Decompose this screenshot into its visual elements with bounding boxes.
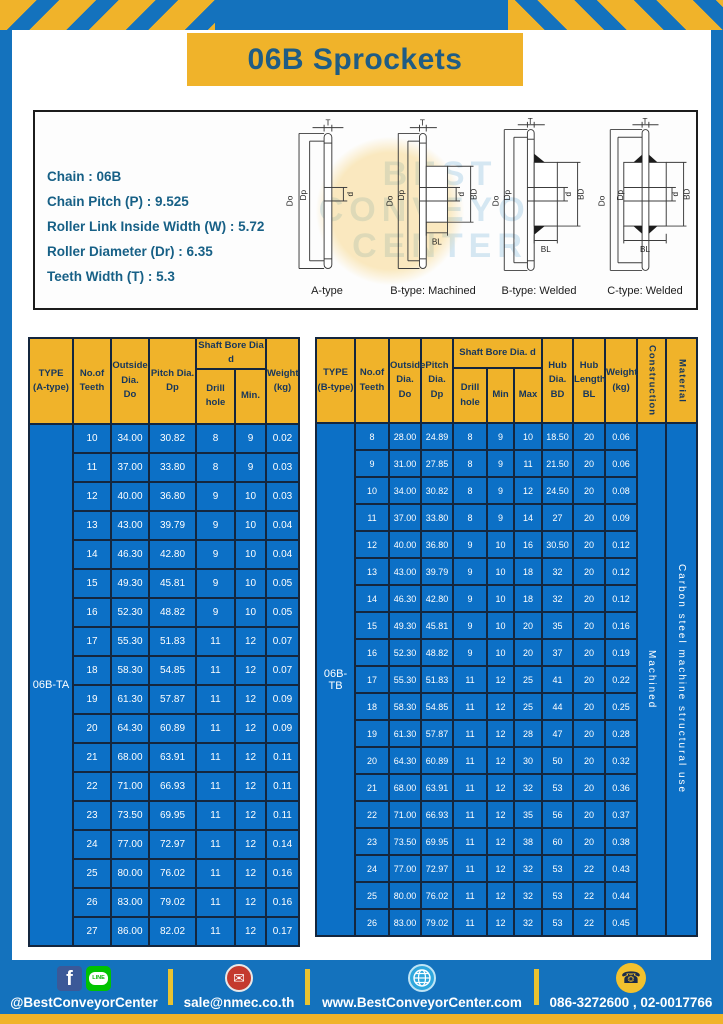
data-cell: 12: [235, 627, 266, 656]
data-cell: 0.08: [605, 477, 637, 504]
facebook-icon: f: [57, 966, 82, 991]
data-cell: 72.97: [149, 830, 196, 859]
data-cell: 32: [514, 855, 542, 882]
data-cell: 11: [453, 666, 487, 693]
svg-text:Dp: Dp: [616, 189, 625, 200]
data-cell: 0.36: [605, 774, 637, 801]
svg-text:Do: Do: [285, 195, 294, 206]
data-cell: 10: [487, 639, 514, 666]
data-cell: 24: [355, 855, 389, 882]
data-cell: 10: [514, 423, 542, 450]
data-cell: 20: [573, 612, 605, 639]
data-cell: 32: [514, 909, 542, 936]
data-cell: 0.06: [605, 450, 637, 477]
bottom-accent-strip: [0, 1014, 723, 1024]
data-cell: 10: [235, 540, 266, 569]
hazard-stripes-left: [0, 0, 215, 30]
svg-text:Dp: Dp: [397, 189, 406, 200]
svg-text:d: d: [346, 191, 355, 196]
data-cell: 16: [73, 598, 111, 627]
data-cell: 9: [196, 482, 235, 511]
spec-line: Chain : 06B: [47, 164, 287, 189]
data-cell: 77.00: [111, 830, 149, 859]
data-cell: 20: [573, 639, 605, 666]
svg-text:T: T: [325, 119, 330, 128]
data-cell: 20: [573, 531, 605, 558]
data-cell: 57.87: [149, 685, 196, 714]
data-cell: 11: [453, 774, 487, 801]
data-cell: 11: [196, 830, 235, 859]
data-cell: 9: [453, 531, 487, 558]
data-cell: 11: [355, 504, 389, 531]
data-cell: 36.80: [149, 482, 196, 511]
data-cell: 11: [196, 685, 235, 714]
data-cell: 20: [573, 477, 605, 504]
data-cell: 12: [235, 743, 266, 772]
data-cell: 60.89: [421, 747, 453, 774]
data-cell: 32: [514, 882, 542, 909]
data-cell: 71.00: [111, 772, 149, 801]
data-cell: 20: [514, 612, 542, 639]
data-cell: 0.38: [605, 828, 637, 855]
data-cell: 55.30: [389, 666, 421, 693]
data-cell: 0.37: [605, 801, 637, 828]
table-row: 06B-TA1034.0030.82890.02: [29, 424, 299, 453]
data-cell: 11: [453, 882, 487, 909]
data-cell: 0.32: [605, 747, 637, 774]
data-cell: 13: [355, 558, 389, 585]
construction-value: Machined: [637, 423, 666, 936]
data-cell: 86.00: [111, 917, 149, 946]
data-cell: 12: [487, 909, 514, 936]
data-cell: 9: [453, 639, 487, 666]
social-handle: @BestConveyorCenter: [10, 995, 157, 1010]
data-cell: 49.30: [111, 569, 149, 598]
data-cell: 51.83: [149, 627, 196, 656]
data-cell: 0.09: [266, 714, 299, 743]
data-cell: 14: [73, 540, 111, 569]
data-cell: 32: [542, 585, 573, 612]
col-header-construction: Construction: [637, 338, 666, 423]
data-cell: 0.07: [266, 627, 299, 656]
data-cell: 22: [573, 909, 605, 936]
data-cell: 0.04: [266, 540, 299, 569]
data-cell: 12: [235, 830, 266, 859]
data-cell: 11: [514, 450, 542, 477]
data-cell: 11: [196, 859, 235, 888]
data-cell: 21.50: [542, 450, 573, 477]
data-cell: 12: [487, 855, 514, 882]
hazard-stripes-right: [508, 0, 723, 30]
data-cell: 35: [514, 801, 542, 828]
data-cell: 72.97: [421, 855, 453, 882]
data-cell: 58.30: [389, 693, 421, 720]
data-cell: 30.82: [149, 424, 196, 453]
data-cell: 32: [542, 558, 573, 585]
data-cell: 46.30: [111, 540, 149, 569]
data-cell: 57.87: [421, 720, 453, 747]
data-cell: 66.93: [149, 772, 196, 801]
data-cell: 9: [453, 612, 487, 639]
data-cell: 10: [487, 531, 514, 558]
data-cell: 55.30: [111, 627, 149, 656]
data-cell: 77.00: [389, 855, 421, 882]
data-cell: 0.12: [605, 585, 637, 612]
data-cell: 0.44: [605, 882, 637, 909]
spec-line: Roller Diameter (Dr) : 6.35: [47, 239, 287, 264]
data-cell: 21: [355, 774, 389, 801]
data-cell: 16: [355, 639, 389, 666]
data-cell: 27: [542, 504, 573, 531]
data-cell: 63.91: [149, 743, 196, 772]
data-cell: 12: [235, 656, 266, 685]
data-cell: 52.30: [389, 639, 421, 666]
data-cell: 27.85: [421, 450, 453, 477]
material-value: Carbon steel machine structural use: [666, 423, 697, 936]
data-cell: 17: [355, 666, 389, 693]
data-cell: 20: [573, 666, 605, 693]
diagram-caption: A-type: [311, 285, 343, 297]
data-cell: 80.00: [389, 882, 421, 909]
data-cell: 11: [453, 909, 487, 936]
data-cell: 0.11: [266, 772, 299, 801]
data-cell: 20: [573, 828, 605, 855]
data-cell: 30.82: [421, 477, 453, 504]
diagram-c-type-welded: T Do Dp d: [595, 118, 695, 306]
data-cell: 0.19: [605, 639, 637, 666]
svg-text:Do: Do: [385, 195, 394, 206]
data-cell: 58.30: [111, 656, 149, 685]
data-cell: 11: [196, 627, 235, 656]
data-cell: 20: [573, 801, 605, 828]
data-cell: 80.00: [111, 859, 149, 888]
data-cell: 30: [514, 747, 542, 774]
catalog-page: 06B Sprockets BEST CONVEYOR CENTER Chain…: [0, 0, 723, 1024]
data-cell: 0.02: [266, 424, 299, 453]
data-cell: 10: [355, 477, 389, 504]
data-cell: 0.25: [605, 693, 637, 720]
data-cell: 11: [196, 888, 235, 917]
svg-text:BD: BD: [576, 188, 585, 199]
data-cell: 76.02: [149, 859, 196, 888]
data-cell: 12: [235, 772, 266, 801]
data-cell: 10: [235, 598, 266, 627]
data-cell: 12: [487, 720, 514, 747]
data-cell: 73.50: [389, 828, 421, 855]
col-header-pitch-dia: Pitch Dia. Dp: [421, 338, 453, 423]
data-cell: 0.28: [605, 720, 637, 747]
col-header-min: Min.: [235, 369, 266, 424]
data-cell: 8: [196, 424, 235, 453]
data-cell: 20: [73, 714, 111, 743]
data-cell: 51.83: [421, 666, 453, 693]
data-cell: 25: [514, 693, 542, 720]
data-cell: 42.80: [149, 540, 196, 569]
col-header-shaft-bore: Shaft Bore Dia d: [196, 338, 266, 369]
data-cell: 0.11: [266, 801, 299, 830]
data-cell: 20: [573, 558, 605, 585]
data-cell: 35: [542, 612, 573, 639]
data-cell: 10: [487, 558, 514, 585]
svg-text:Dp: Dp: [299, 189, 308, 200]
col-header-pitch-dia: Pitch Dia. Dp: [149, 338, 196, 424]
data-cell: 48.82: [421, 639, 453, 666]
data-cell: 8: [453, 423, 487, 450]
col-header-outside-dia: Outside Dia. Do: [111, 338, 149, 424]
data-cell: 9: [487, 477, 514, 504]
data-cell: 18: [514, 585, 542, 612]
data-cell: 0.12: [605, 531, 637, 558]
data-cell: 0.14: [266, 830, 299, 859]
data-cell: 0.22: [605, 666, 637, 693]
data-cell: 26: [73, 888, 111, 917]
data-cell: 37.00: [111, 453, 149, 482]
data-cell: 9: [235, 453, 266, 482]
data-cell: 69.95: [421, 828, 453, 855]
data-cell: 10: [235, 511, 266, 540]
diagram-a-type: T Do Dp d A-type: [277, 118, 377, 306]
data-cell: 0.09: [266, 685, 299, 714]
data-cell: 79.02: [421, 909, 453, 936]
data-cell: 12: [487, 774, 514, 801]
col-header-outside-dia: Outside Dia. Do: [389, 338, 421, 423]
data-cell: 73.50: [111, 801, 149, 830]
data-cell: 11: [196, 743, 235, 772]
data-cell: 11: [453, 801, 487, 828]
data-cell: 0.09: [605, 504, 637, 531]
data-cell: 12: [514, 477, 542, 504]
data-cell: 10: [487, 585, 514, 612]
col-header-type: TYPE (A-type): [29, 338, 73, 424]
data-cell: 8: [453, 477, 487, 504]
svg-text:BL: BL: [640, 245, 650, 254]
data-cell: 0.04: [266, 511, 299, 540]
a-type-spec-table: TYPE (A-type) No.of Teeth Outside Dia. D…: [28, 337, 300, 947]
data-cell: 8: [453, 450, 487, 477]
data-cell: 12: [235, 685, 266, 714]
data-cell: 28: [514, 720, 542, 747]
data-cell: 33.80: [149, 453, 196, 482]
data-cell: 9: [196, 540, 235, 569]
data-cell: 40.00: [389, 531, 421, 558]
data-cell: 54.85: [421, 693, 453, 720]
data-cell: 47: [542, 720, 573, 747]
svg-text:BD: BD: [469, 188, 478, 199]
data-cell: 30.50: [542, 531, 573, 558]
data-cell: 39.79: [149, 511, 196, 540]
phone-icons: ☎: [616, 962, 646, 994]
svg-text:T: T: [420, 119, 425, 128]
data-cell: 15: [73, 569, 111, 598]
diagram-caption: B-type: Machined: [390, 285, 476, 297]
data-cell: 22: [355, 801, 389, 828]
website-url: www.BestConveyorCenter.com: [322, 995, 522, 1010]
data-cell: 9: [487, 423, 514, 450]
phone-icon: ☎: [616, 963, 646, 993]
data-cell: 60.89: [149, 714, 196, 743]
data-cell: 31.00: [389, 450, 421, 477]
data-cell: 32: [514, 774, 542, 801]
data-cell: 11: [196, 801, 235, 830]
social-icons: f LINE: [57, 962, 111, 994]
data-cell: 0.12: [605, 558, 637, 585]
data-cell: 20: [514, 639, 542, 666]
svg-text:Do: Do: [491, 195, 500, 206]
data-cell: 25: [355, 882, 389, 909]
data-cell: 12: [487, 801, 514, 828]
data-cell: 48.82: [149, 598, 196, 627]
table-row: 06B-TB828.0024.89891018.50200.06Machined…: [316, 423, 697, 450]
data-cell: 12: [73, 482, 111, 511]
svg-text:T: T: [642, 118, 647, 126]
data-cell: 12: [355, 531, 389, 558]
social-contact: f LINE @BestConveyorCenter: [0, 960, 168, 1014]
data-cell: 56: [542, 801, 573, 828]
data-cell: 0.16: [266, 859, 299, 888]
data-cell: 26: [355, 909, 389, 936]
line-icon: LINE: [86, 966, 111, 991]
phone-contact: ☎ 086-3272600 , 02-0017766: [539, 960, 723, 1014]
data-cell: 12: [487, 882, 514, 909]
col-header-teeth: No.of Teeth: [355, 338, 389, 423]
data-cell: 0.16: [266, 888, 299, 917]
data-cell: 46.30: [389, 585, 421, 612]
data-cell: 13: [73, 511, 111, 540]
svg-text:d: d: [564, 191, 573, 196]
data-cell: 23: [355, 828, 389, 855]
svg-text:d: d: [671, 191, 680, 196]
data-cell: 11: [453, 855, 487, 882]
svg-text:BL: BL: [541, 245, 551, 254]
data-cell: 69.95: [149, 801, 196, 830]
data-cell: 37: [542, 639, 573, 666]
col-header-weight: Weight (kg): [605, 338, 637, 423]
a-type-drawing: T Do Dp d: [279, 118, 375, 282]
data-cell: 18: [355, 693, 389, 720]
data-cell: 20: [355, 747, 389, 774]
data-cell: 17: [73, 627, 111, 656]
data-cell: 12: [235, 714, 266, 743]
data-cell: 39.79: [421, 558, 453, 585]
data-cell: 0.03: [266, 482, 299, 511]
data-cell: 20: [573, 504, 605, 531]
data-cell: 10: [73, 424, 111, 453]
data-cell: 12: [235, 859, 266, 888]
col-header-max: Max: [514, 368, 542, 423]
data-cell: 60: [542, 828, 573, 855]
b-type-machined-drawing: T Do Dp d BD: [385, 118, 481, 282]
data-cell: 64.30: [111, 714, 149, 743]
data-cell: 11: [196, 772, 235, 801]
data-cell: 15: [355, 612, 389, 639]
data-cell: 0.45: [605, 909, 637, 936]
data-cell: 25: [73, 859, 111, 888]
data-cell: 61.30: [111, 685, 149, 714]
data-cell: 24.89: [421, 423, 453, 450]
col-header-hub-dia: Hub Dia. BD: [542, 338, 573, 423]
email-icons: ✉: [225, 962, 253, 994]
data-cell: 83.00: [389, 909, 421, 936]
data-cell: 76.02: [421, 882, 453, 909]
data-cell: 37.00: [389, 504, 421, 531]
svg-text:Do: Do: [597, 195, 606, 206]
data-cell: 11: [196, 917, 235, 946]
data-cell: 9: [196, 511, 235, 540]
data-cell: 0.07: [266, 656, 299, 685]
data-cell: 0.05: [266, 569, 299, 598]
data-cell: 10: [235, 482, 266, 511]
data-cell: 20: [573, 423, 605, 450]
data-cell: 27: [73, 917, 111, 946]
data-cell: 8: [355, 423, 389, 450]
data-cell: 82.02: [149, 917, 196, 946]
diagram-b-type-machined: T Do Dp d BD: [383, 118, 483, 306]
col-header-shaft-bore: Shaft Bore Dia. d: [453, 338, 542, 368]
data-cell: 12: [487, 828, 514, 855]
data-cell: 53: [542, 774, 573, 801]
data-cell: 49.30: [389, 612, 421, 639]
svg-text:BL: BL: [432, 237, 442, 246]
data-cell: 9: [196, 569, 235, 598]
data-cell: 71.00: [389, 801, 421, 828]
data-cell: 20: [573, 747, 605, 774]
data-cell: 9: [355, 450, 389, 477]
contact-footer: f LINE @BestConveyorCenter ✉ sale@nmec.c…: [0, 960, 723, 1014]
data-cell: 25: [514, 666, 542, 693]
data-cell: 12: [487, 693, 514, 720]
data-cell: 23: [73, 801, 111, 830]
col-header-drill-hole: Drill hole: [453, 368, 487, 423]
phone-numbers: 086-3272600 , 02-0017766: [550, 995, 713, 1010]
title-banner: 06B Sprockets: [187, 33, 523, 86]
data-cell: 20: [573, 693, 605, 720]
b-type-welded-drawing: T Do Dp d: [491, 118, 587, 282]
data-cell: 12: [487, 747, 514, 774]
data-cell: 9: [487, 504, 514, 531]
data-cell: 19: [73, 685, 111, 714]
data-cell: 54.85: [149, 656, 196, 685]
globe-icon: [408, 964, 436, 992]
col-header-material: Material: [666, 338, 697, 423]
data-cell: 16: [514, 531, 542, 558]
data-cell: 34.00: [389, 477, 421, 504]
data-cell: 11: [196, 656, 235, 685]
data-cell: 10: [487, 612, 514, 639]
data-cell: 10: [235, 569, 266, 598]
data-cell: 66.93: [421, 801, 453, 828]
data-cell: 20: [573, 450, 605, 477]
data-cell: 9: [453, 558, 487, 585]
data-cell: 24: [73, 830, 111, 859]
data-cell: 18: [73, 656, 111, 685]
data-cell: 20: [573, 774, 605, 801]
svg-text:BD: BD: [682, 188, 691, 199]
data-cell: 11: [196, 714, 235, 743]
data-cell: 68.00: [111, 743, 149, 772]
data-cell: 8: [196, 453, 235, 482]
data-cell: 52.30: [111, 598, 149, 627]
col-header-teeth: No.of Teeth: [73, 338, 111, 424]
data-cell: 28.00: [389, 423, 421, 450]
data-cell: 0.11: [266, 743, 299, 772]
data-cell: 45.81: [421, 612, 453, 639]
data-cell: 43.00: [389, 558, 421, 585]
data-cell: 0.16: [605, 612, 637, 639]
diagram-caption: C-type: Welded: [607, 285, 683, 297]
col-header-weight: Weight (kg): [266, 338, 299, 424]
svg-text:Dp: Dp: [503, 189, 512, 200]
data-cell: 11: [453, 720, 487, 747]
